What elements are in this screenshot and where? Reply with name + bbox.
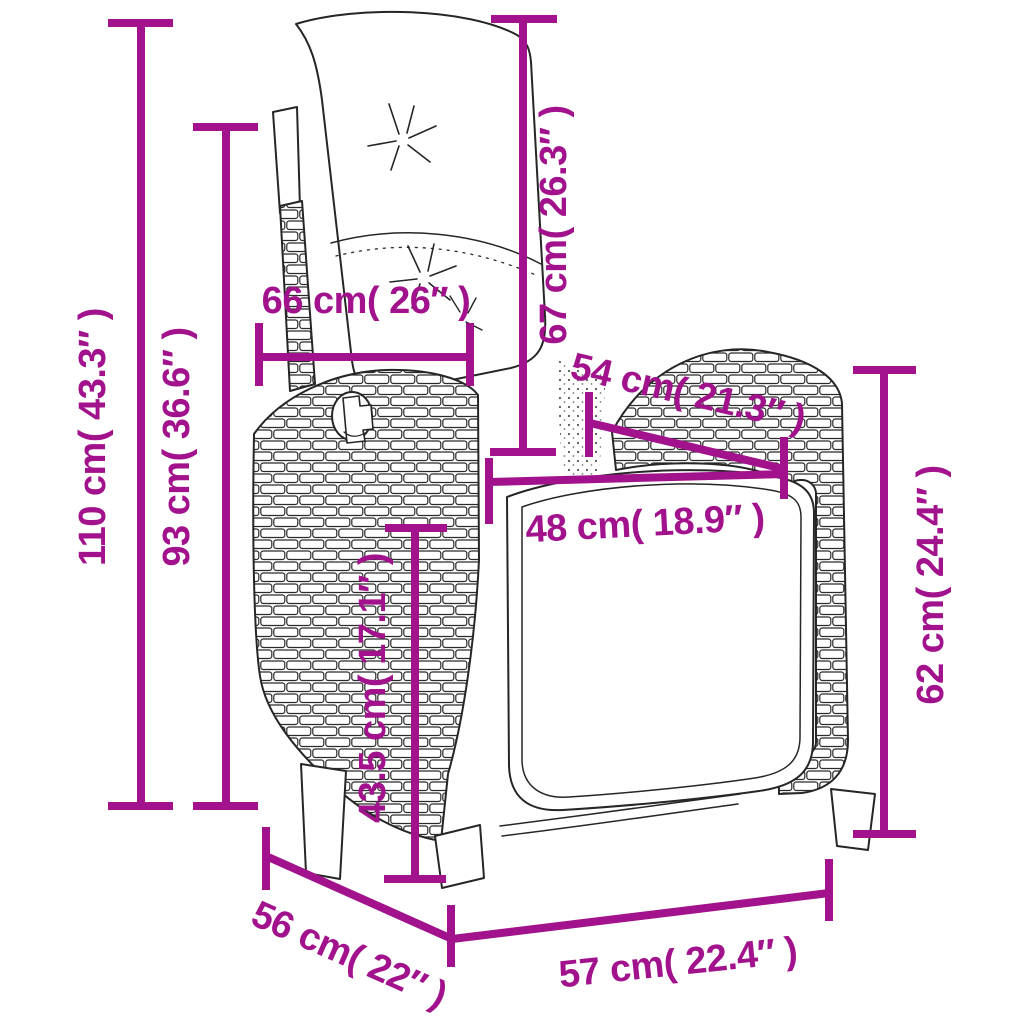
dimension-line-backrest-height [193,127,258,806]
dimension-line-armrest-height [853,370,916,834]
base-rail-line-2 [502,804,738,836]
chair-illustration [0,0,1024,1024]
dimension-label-backrest-height: 93 cm( 36.6″ ) [158,327,196,566]
dimension-label-armrest-height: 62 cm( 24.4″ ) [912,465,950,704]
product-dimension-diagram: 110 cm( 43.3″ ) 93 cm( 36.6″ ) 66 cm( 26… [0,0,1024,1024]
back-cushion [296,12,545,393]
dimension-label-total-height: 110 cm( 43.3″ ) [74,308,112,566]
dimension-label-back-cushion: 67 cm( 26.3″ ) [535,105,573,344]
back-frame-post [273,107,300,213]
chair-leg-right [831,789,875,850]
chair-leg-left [301,764,346,879]
dimension-label-seat-height: 43.5 cm( 17.1″ ) [354,553,392,823]
dimension-label-backrest-width: 66 cm( 26″ ) [262,282,471,320]
dimension-line-base-width [452,859,829,939]
